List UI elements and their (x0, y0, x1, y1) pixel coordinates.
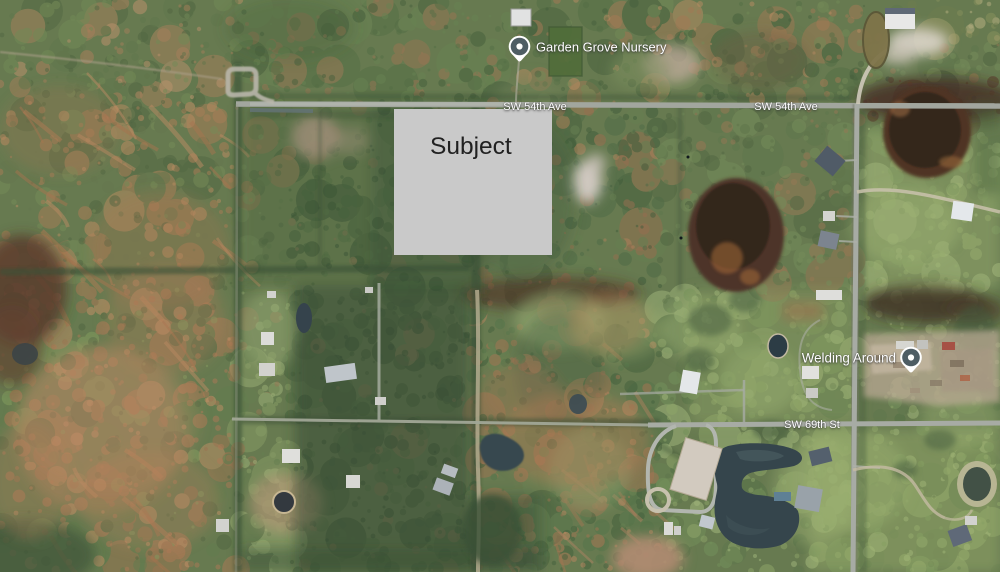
svg-text:SW 54th Ave: SW 54th Ave (754, 101, 817, 113)
svg-text:Garden Grove Nursery: Garden Grove Nursery (536, 40, 667, 55)
svg-text:Welding Around: Welding Around (802, 351, 896, 366)
svg-text:SW 54th Ave: SW 54th Ave (503, 101, 566, 113)
svg-text:Subject: Subject (430, 133, 512, 160)
svg-text:SW 69th St: SW 69th St (784, 419, 840, 431)
